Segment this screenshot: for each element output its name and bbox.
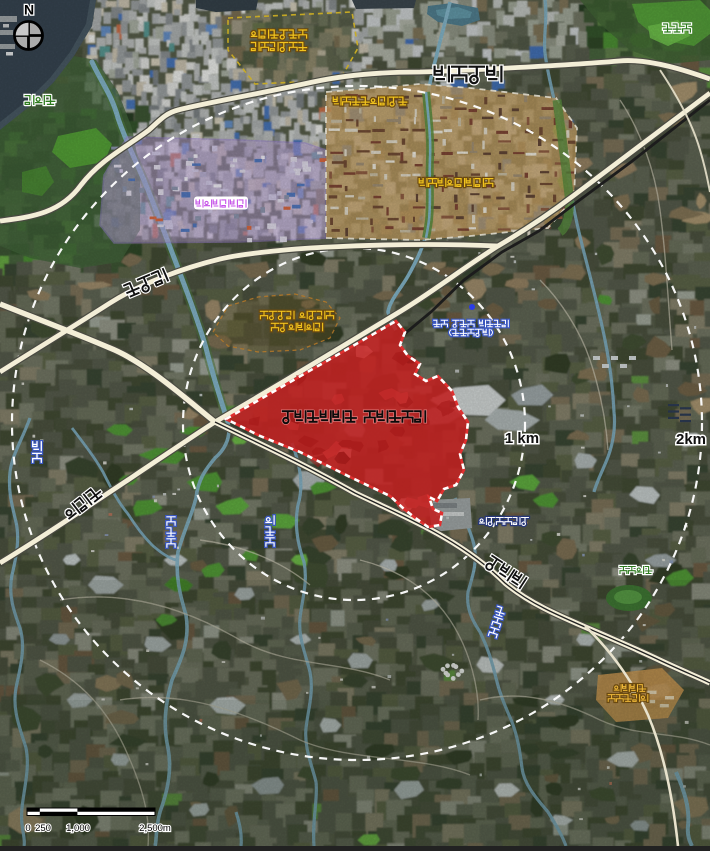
svg-text:2km: 2km (676, 431, 706, 448)
svg-text:2,500m: 2,500m (139, 823, 171, 834)
svg-text:N: N (24, 2, 34, 18)
svg-text:1 km: 1 km (505, 430, 539, 447)
svg-text:250: 250 (35, 823, 51, 834)
svg-text:0: 0 (25, 823, 30, 834)
svg-text:1,000: 1,000 (66, 823, 90, 834)
